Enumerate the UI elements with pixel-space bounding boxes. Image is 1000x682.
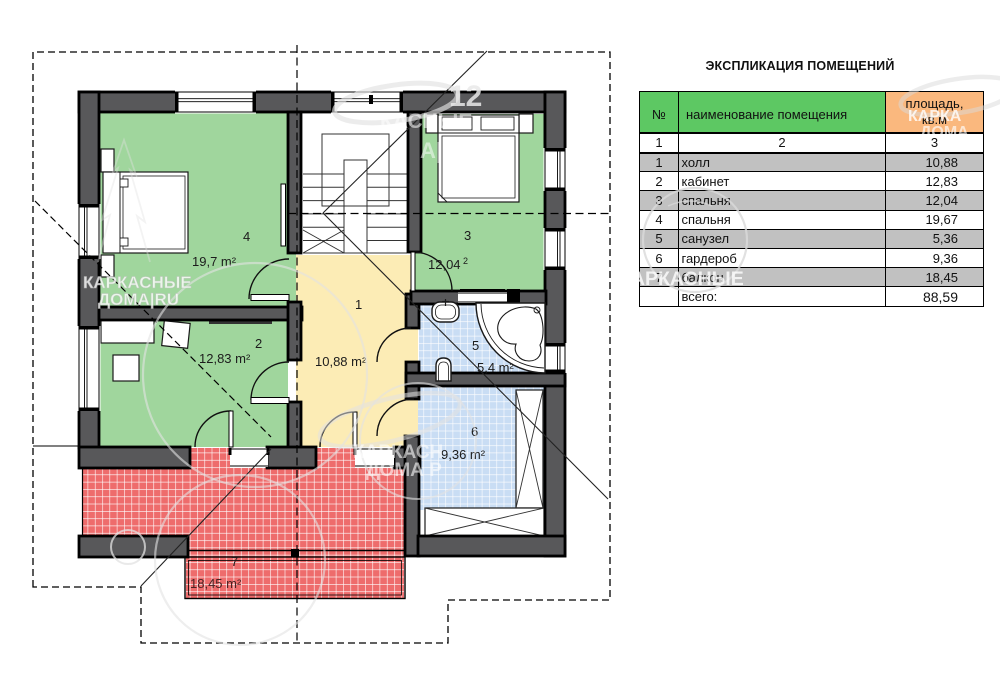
svg-text:2: 2 — [463, 256, 468, 266]
svg-text:ДОМА|RU: ДОМА|RU — [98, 290, 179, 309]
svg-text:5,4 m²: 5,4 m² — [477, 360, 515, 375]
svg-text:2: 2 — [255, 336, 262, 351]
svg-text:1: 1 — [355, 297, 362, 312]
svg-text:18,45 m²: 18,45 m² — [190, 576, 242, 591]
svg-text:5: 5 — [472, 338, 479, 353]
svg-text:3: 3 — [464, 228, 471, 243]
svg-text:7: 7 — [231, 554, 238, 569]
svg-text:ДОМА Р: ДОМА Р — [366, 460, 442, 481]
svg-text:12: 12 — [449, 80, 482, 113]
svg-text:КАСНЫЕ: КАСНЫЕ — [380, 110, 472, 133]
svg-text:А|Р: А|Р — [420, 138, 457, 163]
svg-text:10,88 m²: 10,88 m² — [315, 354, 367, 369]
svg-text:9,36 m²: 9,36 m² — [441, 447, 486, 462]
svg-text:12,04: 12,04 — [428, 257, 461, 272]
svg-text:12,83 m²: 12,83 m² — [199, 351, 251, 366]
svg-text:4: 4 — [243, 229, 250, 244]
